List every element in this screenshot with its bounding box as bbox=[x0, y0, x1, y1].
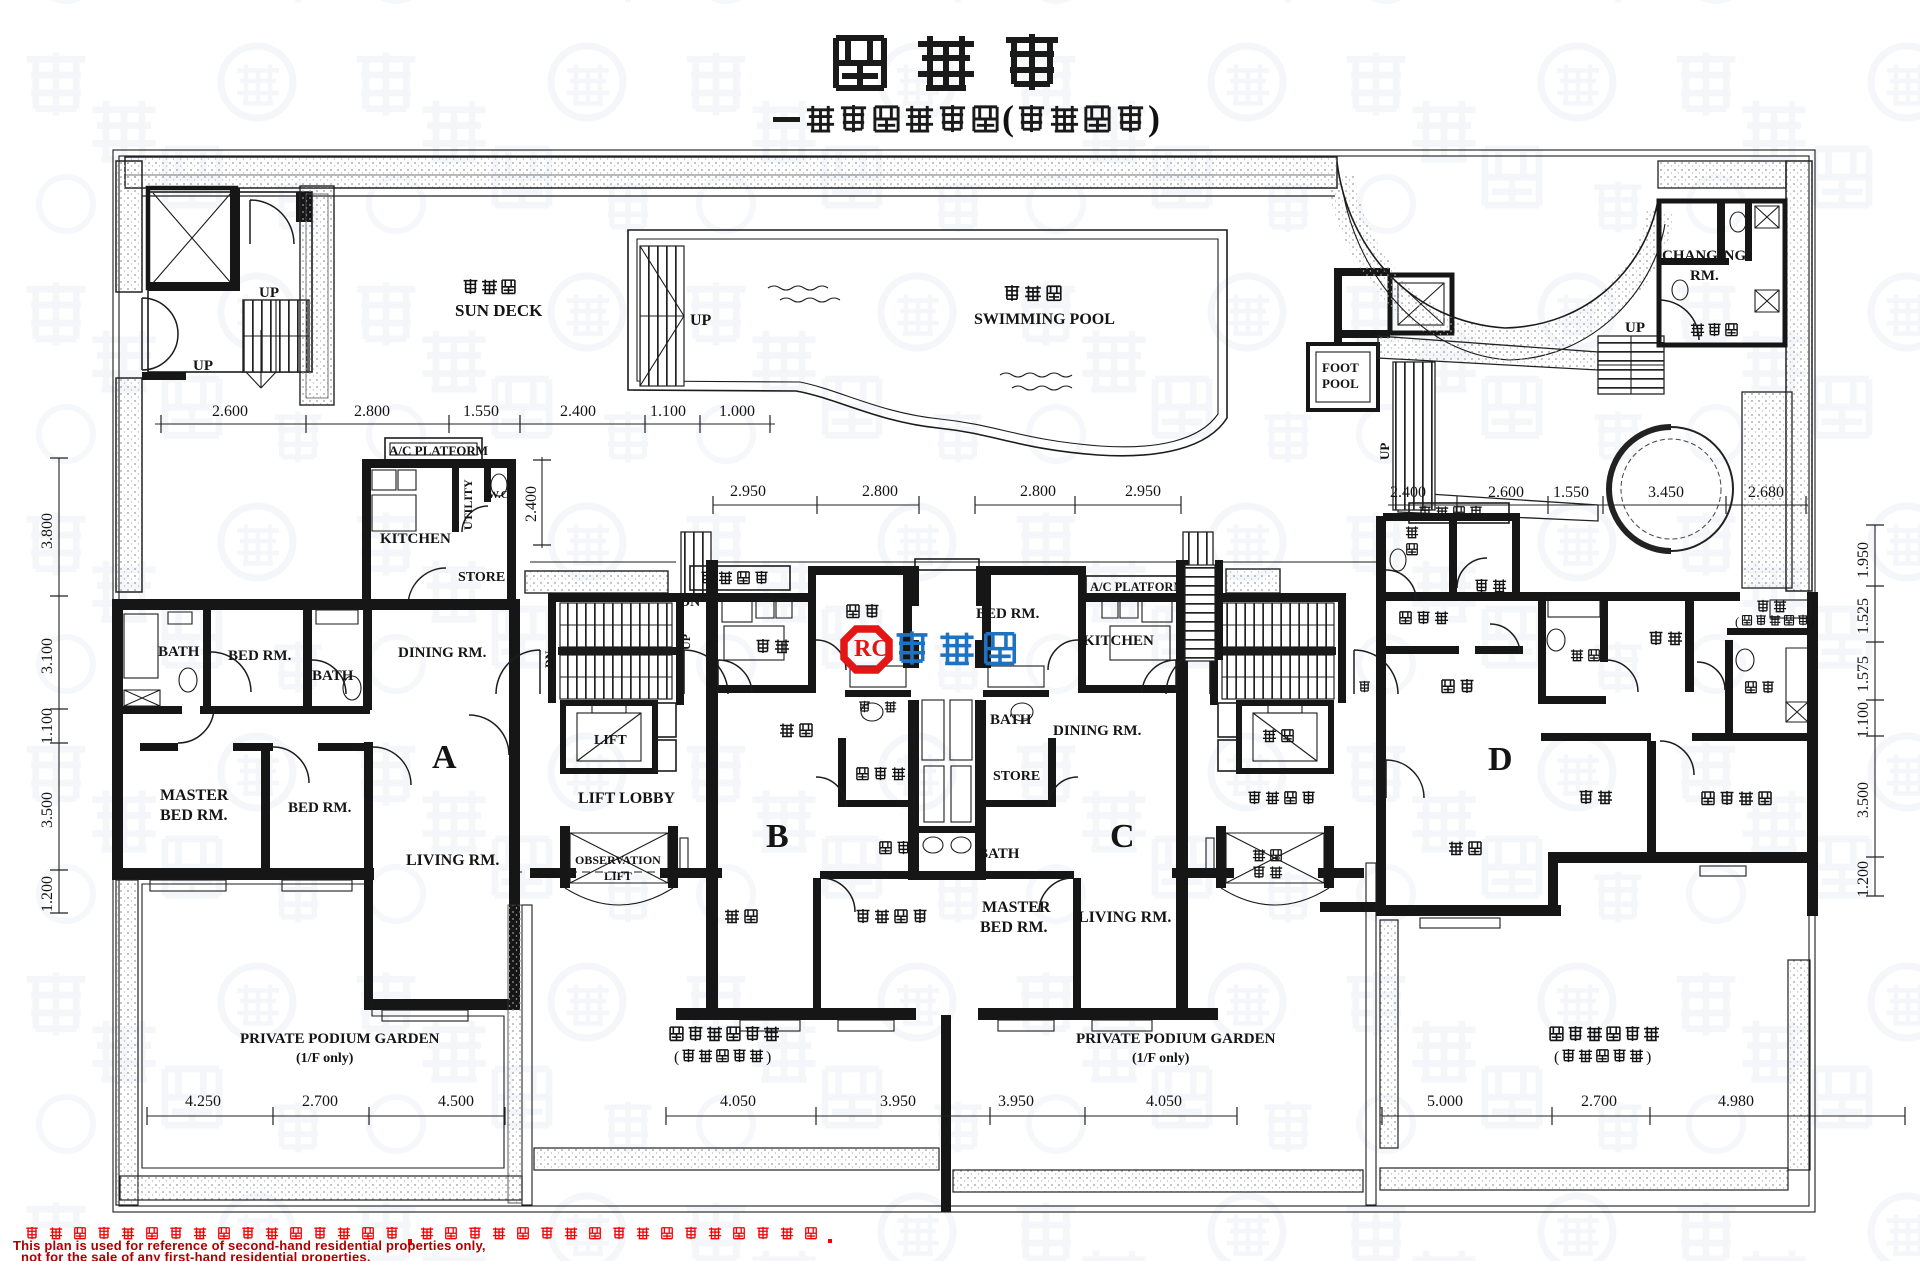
svg-text:B: B bbox=[766, 818, 789, 855]
svg-text:): ) bbox=[1646, 1049, 1651, 1066]
svg-text:2.680: 2.680 bbox=[1748, 484, 1784, 501]
svg-text:): ) bbox=[1810, 614, 1814, 629]
svg-text:3.500: 3.500 bbox=[39, 792, 56, 828]
svg-text:5.000: 5.000 bbox=[1427, 1093, 1463, 1110]
svg-text:A/C PLATFORM: A/C PLATFORM bbox=[389, 443, 488, 458]
svg-text:KITCHEN: KITCHEN bbox=[1083, 633, 1154, 649]
svg-text:MASTER: MASTER bbox=[982, 899, 1051, 916]
svg-text:3.500: 3.500 bbox=[1855, 782, 1872, 818]
svg-text:3.800: 3.800 bbox=[39, 513, 56, 549]
svg-text:DINING RM.: DINING RM. bbox=[1053, 723, 1142, 739]
svg-text:(: ( bbox=[1002, 98, 1014, 138]
svg-text:2.800: 2.800 bbox=[1020, 483, 1056, 500]
svg-text:2.700: 2.700 bbox=[302, 1093, 338, 1110]
svg-text:BATH: BATH bbox=[990, 712, 1032, 728]
svg-text:1.575: 1.575 bbox=[1855, 656, 1872, 692]
svg-text:FOOT: FOOT bbox=[1322, 360, 1359, 375]
svg-text:2.700: 2.700 bbox=[1581, 1093, 1617, 1110]
svg-text:3.100: 3.100 bbox=[39, 638, 56, 674]
svg-text:UP: UP bbox=[259, 285, 279, 301]
svg-text:3.950: 3.950 bbox=[880, 1093, 916, 1110]
svg-text:1.550: 1.550 bbox=[463, 403, 499, 420]
svg-text:): ) bbox=[1148, 98, 1160, 138]
svg-text:not for the sale of any first-: not for the sale of any first-hand resid… bbox=[21, 1250, 371, 1261]
svg-text:BATH: BATH bbox=[978, 846, 1020, 862]
svg-text:1.525: 1.525 bbox=[1855, 598, 1872, 634]
svg-text:D: D bbox=[1488, 741, 1513, 778]
svg-text:BATH: BATH bbox=[158, 644, 200, 660]
svg-text:3.450: 3.450 bbox=[1648, 484, 1684, 501]
svg-text:2.800: 2.800 bbox=[862, 483, 898, 500]
svg-text:OBSERVATION: OBSERVATION bbox=[575, 853, 661, 867]
svg-text:1.100: 1.100 bbox=[1855, 702, 1872, 738]
svg-text:LIFT LOBBY: LIFT LOBBY bbox=[578, 790, 676, 807]
svg-text:SWIMMING POOL: SWIMMING POOL bbox=[974, 311, 1115, 328]
svg-text:KITCHEN: KITCHEN bbox=[380, 531, 451, 547]
svg-text:MASTER: MASTER bbox=[160, 787, 229, 804]
svg-text:1.950: 1.950 bbox=[1855, 542, 1872, 578]
svg-text:STORE: STORE bbox=[458, 570, 505, 585]
svg-text:2.600: 2.600 bbox=[1488, 484, 1524, 501]
svg-text:SUN DECK: SUN DECK bbox=[455, 301, 543, 320]
svg-text:PRIVATE PODIUM GARDEN: PRIVATE PODIUM GARDEN bbox=[240, 1031, 440, 1047]
svg-text:2.950: 2.950 bbox=[1125, 483, 1161, 500]
svg-text:STORE: STORE bbox=[993, 769, 1040, 784]
svg-text:RC: RC bbox=[854, 636, 889, 662]
svg-text:C: C bbox=[1110, 818, 1135, 855]
svg-text:4.500: 4.500 bbox=[438, 1093, 474, 1110]
svg-text:1.100: 1.100 bbox=[39, 708, 56, 744]
svg-text:2.400: 2.400 bbox=[523, 486, 540, 522]
svg-text:4.050: 4.050 bbox=[1146, 1093, 1182, 1110]
svg-text:2.600: 2.600 bbox=[212, 403, 248, 420]
svg-text:A: A bbox=[432, 739, 457, 776]
svg-text:BED RM.: BED RM. bbox=[288, 800, 352, 816]
svg-text:): ) bbox=[766, 1049, 771, 1066]
svg-text:3.950: 3.950 bbox=[998, 1093, 1034, 1110]
svg-text:4.980: 4.980 bbox=[1718, 1093, 1754, 1110]
svg-text:PRIVATE PODIUM GARDEN: PRIVATE PODIUM GARDEN bbox=[1076, 1031, 1276, 1047]
svg-text:1.200: 1.200 bbox=[39, 876, 56, 912]
svg-text:BED RM.: BED RM. bbox=[228, 648, 292, 664]
svg-text:1.550: 1.550 bbox=[1553, 484, 1589, 501]
svg-text:DINING RM.: DINING RM. bbox=[398, 645, 487, 661]
svg-text:BED RM.: BED RM. bbox=[980, 919, 1048, 936]
svg-text:(: ( bbox=[1554, 1049, 1559, 1066]
svg-text:2.400: 2.400 bbox=[560, 403, 596, 420]
svg-text:UP: UP bbox=[1377, 443, 1392, 460]
svg-text:A/C PLATFORM: A/C PLATFORM bbox=[1090, 580, 1185, 594]
svg-text:UP: UP bbox=[690, 312, 712, 329]
svg-text:2.800: 2.800 bbox=[354, 403, 390, 420]
svg-text:(: ( bbox=[1735, 614, 1739, 629]
svg-text:(1/F only): (1/F only) bbox=[1132, 1051, 1190, 1066]
svg-text:LIFT: LIFT bbox=[594, 733, 627, 748]
svg-text:1.100: 1.100 bbox=[650, 403, 686, 420]
svg-text:BED RM.: BED RM. bbox=[160, 807, 228, 824]
svg-text:LIVING RM.: LIVING RM. bbox=[406, 852, 499, 869]
svg-text:4.250: 4.250 bbox=[185, 1093, 221, 1110]
svg-text:LIVING RM.: LIVING RM. bbox=[1078, 909, 1171, 926]
svg-text:1.200: 1.200 bbox=[1855, 861, 1872, 897]
svg-text:2.950: 2.950 bbox=[730, 483, 766, 500]
svg-text:UP: UP bbox=[193, 358, 213, 374]
svg-text:4.050: 4.050 bbox=[720, 1093, 756, 1110]
svg-text:BATH: BATH bbox=[312, 668, 354, 684]
svg-text:BED RM.: BED RM. bbox=[976, 606, 1040, 622]
svg-text:(1/F only): (1/F only) bbox=[296, 1051, 354, 1066]
svg-text:W.C.: W.C. bbox=[488, 489, 512, 501]
svg-text:POOL: POOL bbox=[1322, 376, 1359, 391]
svg-text:(: ( bbox=[674, 1049, 679, 1066]
svg-text:UP: UP bbox=[1625, 320, 1645, 336]
svg-text:CHANGING: CHANGING bbox=[1662, 248, 1747, 264]
svg-text:RM.: RM. bbox=[1690, 268, 1719, 284]
svg-text:1.000: 1.000 bbox=[719, 403, 755, 420]
svg-text:UP: UP bbox=[679, 634, 693, 650]
svg-text:2.400: 2.400 bbox=[1390, 484, 1426, 501]
svg-text:LIFT: LIFT bbox=[604, 869, 632, 883]
svg-text:DN: DN bbox=[542, 650, 556, 668]
